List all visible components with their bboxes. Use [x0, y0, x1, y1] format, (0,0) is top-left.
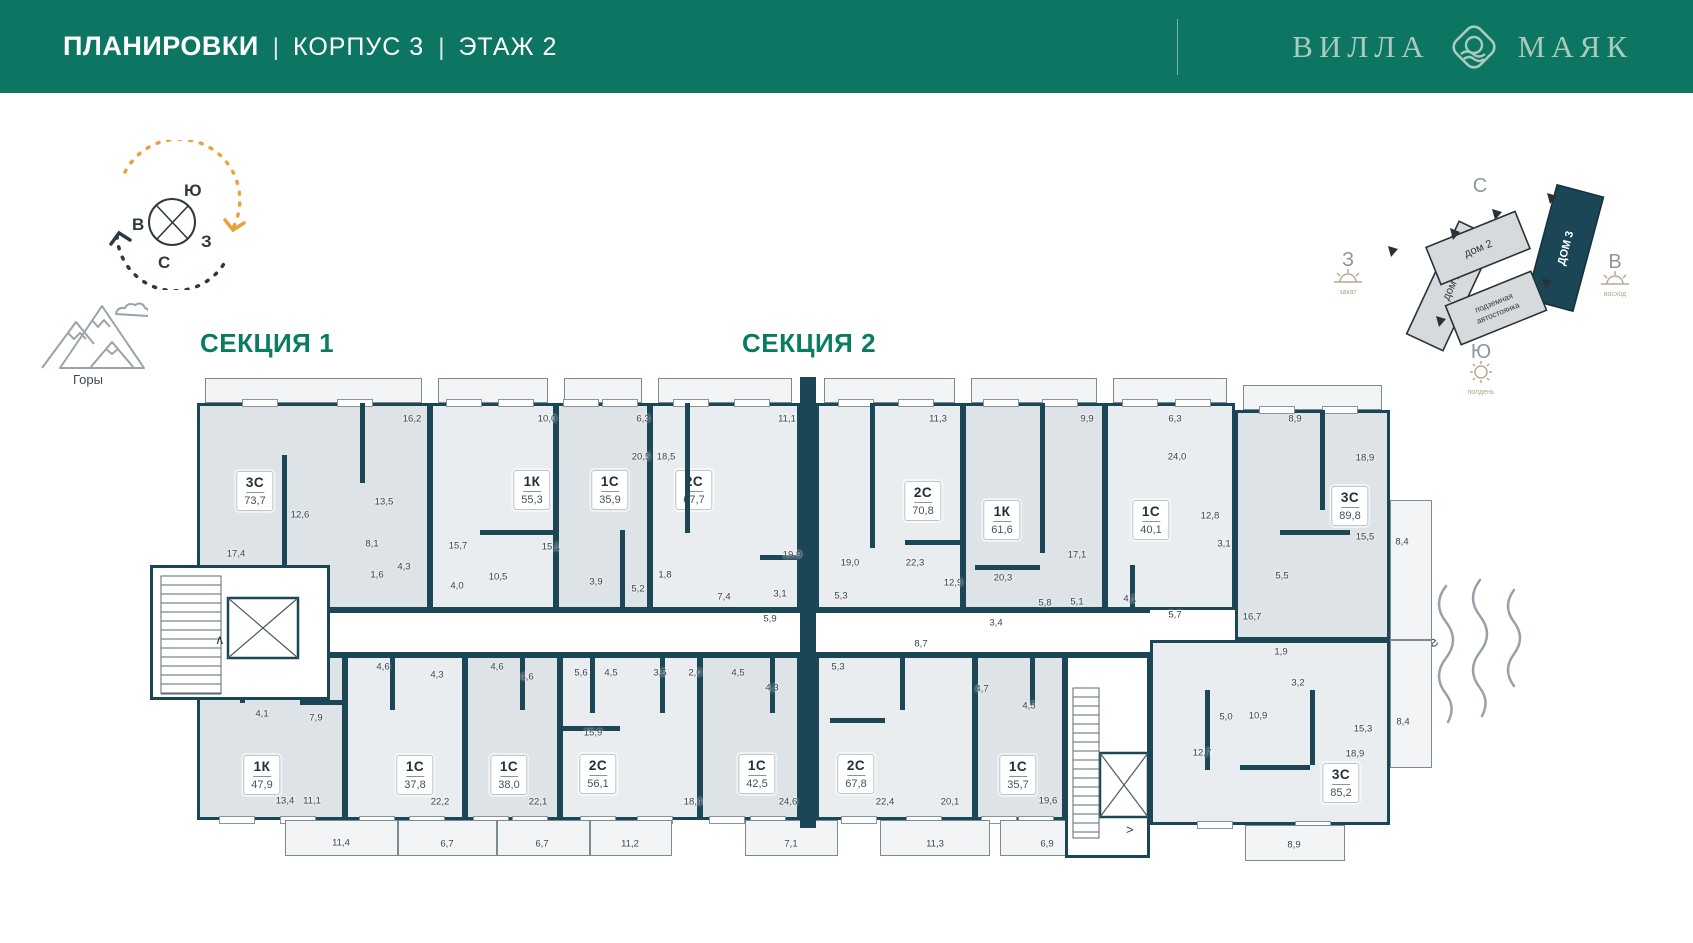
dimension-label: 8,7	[914, 639, 927, 650]
apartment-area: 37,8	[404, 779, 425, 791]
dimension-label: 6,9	[1040, 839, 1053, 850]
dimension-label: 8,9	[1288, 414, 1301, 425]
interior-wall	[905, 540, 963, 545]
stair-elevator-core[interactable]: ∧	[150, 565, 330, 700]
dimension-label: 20,3	[994, 573, 1013, 584]
apartment-area: 85,2	[1330, 787, 1351, 799]
dimension-label: 11,1	[778, 414, 796, 425]
apartment-type: 2С	[587, 759, 608, 773]
interior-wall	[1310, 690, 1315, 765]
dimension-label: 4,5	[731, 668, 744, 679]
dimension-label: 8,4	[1396, 717, 1409, 728]
apartment-type: 3С	[244, 476, 265, 490]
dimension-label: 5,0	[1219, 712, 1232, 723]
apartment-area: 56,1	[587, 778, 608, 790]
apartment-label[interactable]: 2С70,8	[904, 481, 941, 521]
label-divider	[748, 775, 766, 776]
dimension-label: 5,5	[1275, 571, 1288, 582]
window	[673, 399, 709, 407]
window	[446, 399, 482, 407]
dimension-label: 24,6	[779, 797, 798, 808]
dimension-label: 15,5	[1356, 532, 1375, 543]
terrace	[1390, 640, 1432, 768]
dimension-label: 4,3	[430, 670, 443, 681]
balcony	[205, 378, 422, 403]
window	[337, 399, 373, 407]
dimension-label: 2,0	[688, 668, 701, 679]
dimension-label: 11,2	[621, 839, 639, 850]
interior-wall	[360, 403, 365, 483]
interior-wall	[1030, 655, 1035, 705]
dimension-label: 10,9	[1249, 711, 1268, 722]
dimension-label: 11,3	[926, 839, 944, 850]
window	[563, 399, 599, 407]
interior-wall	[1280, 530, 1350, 535]
label-divider	[914, 502, 932, 503]
stair-elevator-core[interactable]: >	[1065, 655, 1150, 858]
dimension-label: 3,5	[653, 668, 666, 679]
dimension-label: 7,1	[784, 839, 797, 850]
dimension-label: 4,3	[397, 562, 410, 573]
dimension-label: 12,8	[1201, 511, 1220, 522]
dimension-label: 4,6	[520, 672, 533, 683]
window	[1175, 399, 1211, 407]
dimension-label: 15,7	[449, 541, 468, 552]
dimension-label: 1,6	[370, 570, 383, 581]
dimension-label: 7,4	[717, 592, 730, 603]
apartment-unit[interactable]	[560, 655, 700, 820]
dimension-label: 4,6	[490, 662, 503, 673]
apartment-type: 2С	[845, 759, 866, 773]
apartment-area: 55,3	[521, 494, 542, 506]
dimension-label: 3,9	[589, 577, 602, 588]
window	[898, 399, 934, 407]
dimension-label: 5,2	[631, 584, 644, 595]
dimension-label: 19,0	[841, 558, 860, 569]
apartment-label[interactable]: 1С35,7	[999, 755, 1036, 795]
dimension-label: 10,0	[538, 414, 557, 425]
interior-wall	[870, 403, 875, 548]
apartment-label[interactable]: 3С89,8	[1331, 486, 1368, 526]
window	[1042, 399, 1078, 407]
dimension-label: 11,3	[929, 414, 947, 425]
dimension-label: 3,4	[989, 618, 1002, 629]
window	[983, 399, 1019, 407]
dimension-label: 5,6	[574, 668, 587, 679]
dimension-label: 11,1	[303, 796, 321, 807]
dimension-label: 12,9	[944, 578, 963, 589]
dimension-label: 6,3	[636, 414, 649, 425]
dimension-label: 6,7	[440, 839, 453, 850]
interior-wall	[660, 655, 665, 713]
dimension-label: 22,2	[431, 797, 450, 808]
apartment-area: 89,8	[1339, 510, 1360, 522]
dimension-label: 19,9	[783, 550, 802, 561]
window	[841, 816, 877, 824]
window	[1322, 406, 1358, 414]
window	[734, 399, 770, 407]
interior-wall	[282, 455, 287, 580]
dimension-label: 5,8	[1038, 598, 1051, 609]
interior-wall	[685, 403, 690, 533]
apartment-area: 42,5	[746, 778, 767, 790]
dimension-label: 4,1	[1123, 594, 1136, 605]
dimension-label: 4,7	[975, 684, 988, 695]
dimension-label: 3,1	[773, 589, 786, 600]
terrace	[1390, 500, 1432, 640]
dimension-label: 4,1	[255, 709, 268, 720]
label-divider	[246, 492, 264, 493]
dimension-label: 6,3	[1168, 414, 1181, 425]
stairs-direction-mark: >	[1126, 822, 1134, 837]
dimension-label: 15,9	[584, 728, 603, 739]
apartment-area: 38,0	[498, 779, 519, 791]
apartment-type: 1К	[521, 475, 542, 489]
apartment-type: 2С	[912, 486, 933, 500]
dimension-label: 18,4	[684, 797, 703, 808]
interior-wall	[520, 655, 525, 710]
window	[602, 399, 638, 407]
apartment-type: 1С	[746, 759, 767, 773]
apartment-area: 35,9	[599, 494, 620, 506]
label-divider	[523, 491, 541, 492]
apartment-label[interactable]: 3С85,2	[1322, 763, 1359, 803]
dimension-label: 4,5	[1022, 701, 1035, 712]
apartment-area: 73,7	[244, 495, 265, 507]
apartment-label[interactable]: 1К55,3	[513, 470, 550, 510]
dimension-label: 20,5	[632, 452, 651, 463]
interior-wall	[900, 655, 905, 710]
apartment-type: 1С	[1140, 505, 1161, 519]
stairs-direction-mark: ∧	[215, 632, 225, 647]
apartment-type: 1К	[251, 760, 272, 774]
section-wall	[800, 377, 816, 828]
label-divider	[500, 776, 518, 777]
window	[838, 399, 874, 407]
core-drawing: >	[1068, 658, 1153, 861]
dimension-label: 18,9	[1356, 453, 1375, 464]
label-divider	[589, 775, 607, 776]
interior-wall	[1320, 410, 1325, 510]
interior-wall	[830, 718, 885, 723]
apartment-type: 3С	[1330, 768, 1351, 782]
apartment-type: 1С	[1007, 760, 1028, 774]
dimension-label: 22,1	[529, 797, 548, 808]
apartment-label[interactable]: 1С38,0	[490, 755, 527, 795]
core-drawing: ∧	[153, 568, 333, 703]
apartment-area: 35,7	[1007, 779, 1028, 791]
dimension-label: 5,9	[763, 614, 776, 625]
interior-wall	[620, 530, 625, 610]
apartment-label[interactable]: 1С40,1	[1132, 500, 1169, 540]
label-divider	[601, 491, 619, 492]
label-divider	[1341, 507, 1359, 508]
apartment-unit[interactable]	[1105, 403, 1235, 610]
dimension-label: 13,4	[276, 796, 295, 807]
dimension-label: 10,5	[489, 572, 508, 583]
interior-wall	[590, 655, 595, 713]
dimension-label: 19,6	[1039, 796, 1058, 807]
dimension-label: 8,1	[365, 539, 378, 550]
dimension-label: 18,5	[657, 452, 676, 463]
apartment-area: 61,6	[991, 524, 1012, 536]
dimension-label: 8,9	[1287, 840, 1300, 851]
dimension-label: 13,5	[375, 497, 394, 508]
label-divider	[1142, 521, 1160, 522]
dimension-label: 5,1	[1070, 597, 1083, 608]
interior-wall	[480, 530, 558, 535]
stairs-icon	[1073, 688, 1099, 838]
floor-plan: 3С73,71К55,31С35,92С67,72С70,81К61,61С40…	[0, 0, 1693, 943]
dimension-label: 24,0	[1168, 452, 1187, 463]
dimension-label: 7,9	[309, 713, 322, 724]
label-divider	[253, 776, 271, 777]
apartment-area: 67,8	[845, 778, 866, 790]
label-divider	[993, 521, 1011, 522]
dimension-label: 1,9	[1274, 647, 1287, 658]
apartment-unit[interactable]	[700, 655, 800, 820]
dimension-label: 18,9	[1346, 749, 1365, 760]
interior-wall	[1240, 765, 1310, 770]
apartment-label[interactable]: 1С42,5	[738, 754, 775, 794]
interior-wall	[975, 565, 1040, 570]
window	[1122, 399, 1158, 407]
dimension-label: 6,7	[535, 839, 548, 850]
dimension-label: 4,3	[765, 683, 778, 694]
dimension-label: 5,7	[1168, 610, 1181, 621]
dimension-label: 1,8	[658, 570, 671, 581]
dimension-label: 5,3	[834, 591, 847, 602]
apartment-type: 1С	[599, 475, 620, 489]
window	[709, 816, 745, 824]
dimension-label: 17,4	[227, 549, 246, 560]
label-divider	[1332, 784, 1350, 785]
apartment-unit[interactable]	[465, 655, 560, 820]
dimension-label: 9,9	[1080, 414, 1093, 425]
dimension-label: 5,3	[831, 662, 844, 673]
apartment-unit[interactable]	[345, 655, 465, 820]
apartment-label[interactable]: 1С37,8	[396, 755, 433, 795]
dimension-label: 3,2	[1291, 678, 1304, 689]
dimension-label: 22,3	[906, 558, 925, 569]
apartment-label[interactable]: 1К61,6	[983, 500, 1020, 540]
apartment-label[interactable]: 2С67,8	[837, 754, 874, 794]
dimension-label: 12,7	[1193, 748, 1212, 759]
apartment-unit[interactable]	[650, 403, 800, 610]
dimension-label: 4,0	[450, 581, 463, 592]
dimension-label: 4,6	[376, 662, 389, 673]
apartment-label[interactable]: 2С67,7	[675, 470, 712, 510]
label-divider	[1009, 776, 1027, 777]
interior-wall	[1040, 403, 1045, 553]
dimension-label: 17,1	[1068, 550, 1087, 561]
dimension-label: 4,5	[604, 668, 617, 679]
dimension-label: 12,6	[291, 510, 310, 521]
window	[219, 816, 255, 824]
window	[498, 399, 534, 407]
dimension-label: 15,3	[1354, 724, 1373, 735]
apartment-type: 1К	[991, 505, 1012, 519]
dimension-label: 3,1	[1217, 539, 1230, 550]
window	[242, 399, 278, 407]
apartment-unit[interactable]	[816, 655, 975, 820]
dimension-label: 22,4	[876, 797, 895, 808]
dimension-label: 8,4	[1395, 537, 1408, 548]
label-divider	[406, 776, 424, 777]
interior-wall	[390, 655, 395, 710]
apartment-area: 47,9	[251, 779, 272, 791]
corridor	[330, 610, 1150, 655]
dimension-label: 20,1	[941, 797, 960, 808]
apartment-area: 70,8	[912, 505, 933, 517]
window	[1197, 821, 1233, 829]
apartment-type: 1С	[498, 760, 519, 774]
dimension-label: 11,4	[332, 838, 350, 849]
apartment-type: 1С	[404, 760, 425, 774]
label-divider	[847, 775, 865, 776]
apartment-type: 3С	[1339, 491, 1360, 505]
apartment-area: 40,1	[1140, 524, 1161, 536]
dimension-label: 16,2	[403, 414, 422, 425]
dimension-label: 16,7	[1243, 612, 1262, 623]
apartment-label[interactable]: 1К47,9	[243, 755, 280, 795]
apartment-label[interactable]: 1С35,9	[591, 470, 628, 510]
dimension-label: 15,1	[542, 542, 561, 553]
apartment-label[interactable]: 2С56,1	[579, 754, 616, 794]
apartment-label[interactable]: 3С73,7	[236, 471, 273, 511]
